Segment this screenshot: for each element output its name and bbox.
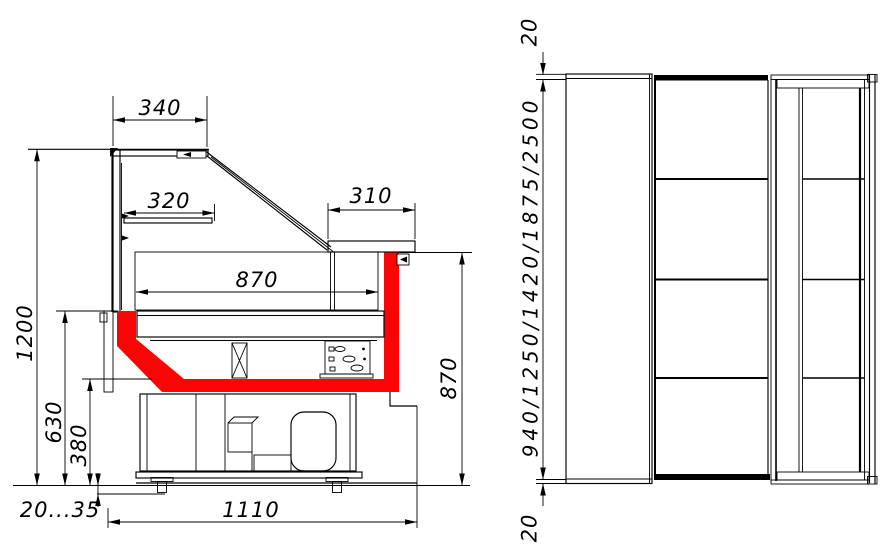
rear-lower-panel	[104, 311, 113, 392]
rear-bottom-band	[777, 472, 869, 480]
dim-320-label: 320	[147, 189, 190, 213]
plan-view	[566, 74, 877, 484]
dim-630-label: 630	[42, 400, 66, 443]
dim-1110-label: 1110	[222, 498, 279, 522]
adjustable-foot-right	[326, 478, 349, 501]
terminal-box-base	[320, 374, 373, 378]
compartment-outer-box	[140, 394, 356, 471]
dim-870-width-label: 870	[235, 268, 278, 292]
dim-1110: 1110	[108, 406, 417, 528]
deck-slab	[137, 311, 384, 337]
terminal-box	[325, 341, 370, 374]
canopy-lamp-box	[177, 151, 206, 158]
machine-compartment	[100, 311, 417, 500]
body-bottom-bar	[654, 474, 770, 480]
dim-310: 310	[328, 184, 415, 239]
shelf-bracket-tick	[122, 236, 129, 241]
dim-340-label: 340	[138, 96, 181, 120]
dim-310-label: 310	[349, 184, 392, 208]
dim-380-label: 380	[67, 423, 91, 466]
counter-top-red	[328, 241, 415, 252]
rear-panel-bracket	[100, 313, 107, 322]
dim-bottom-overhang-label: 20	[518, 514, 542, 543]
dim-1200: 1200	[13, 149, 40, 485]
dim-1200-label: 1200	[13, 304, 37, 361]
electrical-unit-box	[228, 423, 252, 452]
technical-drawing-canvas: 340 320 310 870 1200	[0, 0, 894, 559]
front-glass-slope-outer-line	[206, 152, 331, 248]
terminal-square	[329, 357, 334, 361]
glass-elements	[28, 148, 378, 312]
dim-870-width: 870	[136, 268, 378, 295]
rear-top-strip	[771, 75, 869, 80]
terminal-square	[329, 347, 334, 351]
body-top-bar	[654, 75, 768, 81]
foot-pad	[326, 494, 349, 501]
display-case-drawing: 340 320 310 870 1200	[0, 0, 894, 559]
electrical-unit-box-top	[228, 417, 258, 423]
front-lower-step	[390, 392, 417, 406]
dim-foot-range-label: 20...35	[20, 498, 100, 522]
dim-340: 340	[113, 96, 207, 147]
rear-bottom-strip	[771, 480, 869, 484]
front-glass-slope	[207, 156, 327, 250]
dim-320: 320	[124, 189, 215, 221]
back-glass	[113, 150, 120, 312]
canopy-strip	[566, 74, 652, 484]
front-glass-slope-inner-line	[211, 157, 333, 252]
terminal-oval	[343, 356, 355, 362]
adjustable-foot-left	[151, 478, 174, 501]
compressor-platform	[254, 455, 291, 471]
terminal-square	[330, 367, 335, 371]
foot-pad	[151, 494, 174, 501]
compressor	[291, 412, 336, 471]
dim-380: 380	[67, 379, 152, 486]
glass-shelf	[124, 218, 212, 223]
terminal-oval	[351, 365, 363, 371]
rear-top-band	[777, 80, 869, 89]
terminal-dot	[363, 358, 366, 361]
plan-view-dimensions: 20 940/1250/1420/1875/2500 20	[518, 18, 567, 543]
dim-870-height-label: 870	[437, 356, 461, 399]
dim-lengths-label: 940/1250/1420/1875/2500	[519, 97, 543, 458]
dim-top-overhang-label: 20	[518, 18, 542, 47]
terminal-oval	[335, 347, 345, 352]
terminal-dot	[362, 348, 365, 351]
dim-870-height: 870	[399, 253, 472, 486]
